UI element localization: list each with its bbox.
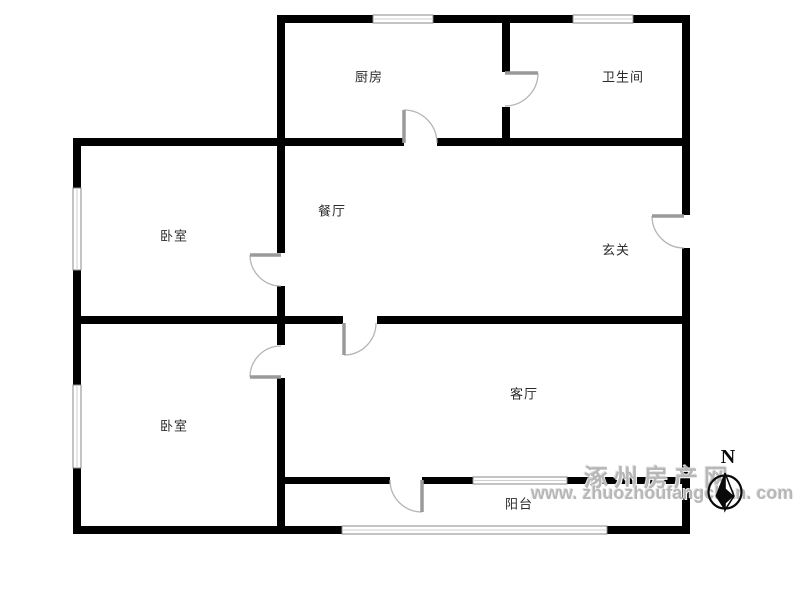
- wall-segment: [73, 526, 342, 534]
- wall-segment: [73, 316, 343, 324]
- compass-rose-icon: [700, 446, 756, 516]
- wall-segment: [607, 526, 690, 534]
- room-label-bedroom-top: 卧室: [160, 226, 188, 245]
- room-label-bedroom-bottom: 卧室: [160, 416, 188, 435]
- room-label-hall: 玄关: [602, 240, 630, 259]
- room-label-balcony: 阳台: [505, 494, 533, 513]
- floorplan-drawing: [0, 0, 800, 600]
- room-label-living: 客厅: [510, 384, 538, 403]
- wall-segment: [682, 15, 690, 215]
- wall-segment: [277, 286, 285, 345]
- compass: N: [700, 446, 756, 516]
- wall-segment: [73, 138, 81, 188]
- wall-segment: [422, 477, 473, 484]
- wall-segment: [277, 378, 285, 534]
- wall-segment: [277, 477, 390, 484]
- wall-segment: [73, 468, 81, 534]
- wall-segment: [377, 316, 690, 324]
- wall-segment: [437, 138, 690, 146]
- wall-segment: [73, 270, 81, 385]
- floorplan-page: 厨房卫生间餐厅玄关卧室卧室客厅阳台 涿州房产网 www. zhuozhoufan…: [0, 0, 800, 600]
- wall-segment: [277, 15, 285, 253]
- wall-segment: [502, 15, 510, 72]
- room-label-kitchen: 厨房: [355, 67, 383, 86]
- wall-segment: [73, 138, 404, 146]
- room-label-dining: 餐厅: [318, 201, 346, 220]
- room-label-bathroom: 卫生间: [602, 67, 644, 86]
- wall-segment: [502, 107, 510, 138]
